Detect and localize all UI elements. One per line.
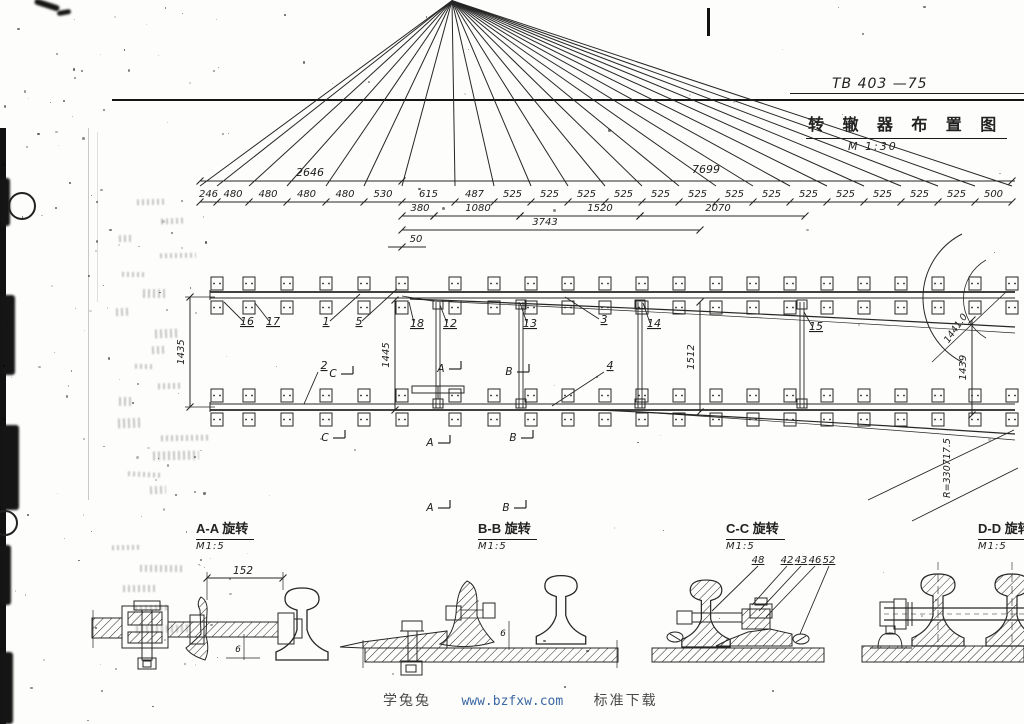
dim-label: 525 — [577, 189, 596, 200]
dim-label: 1080 — [465, 203, 490, 214]
dim-label: 525 — [651, 189, 670, 200]
part-label-18: 18 — [410, 317, 424, 330]
vertical-dim: 1512 — [686, 344, 697, 369]
section-a-scale: M1:5 — [196, 541, 254, 552]
section-c-part-label: 42 — [781, 555, 794, 566]
dim-label: 615 — [419, 189, 438, 200]
dim-label: 246 — [199, 189, 218, 200]
section-mark-C: C — [329, 368, 337, 380]
section-c-scale: M1:5 — [726, 541, 785, 552]
scanned-drawing-page: TB 403 —75 转 辙 器 布 置 图 M 1:30 2646769924… — [0, 0, 1024, 724]
watermark-url: www.bzfxw.com — [461, 694, 563, 709]
section-c-part-label: 46 — [809, 555, 822, 566]
radius-label: R=330717.5 — [942, 438, 953, 498]
rails — [210, 234, 1015, 440]
dimension-layer: 2646769924648048048048053061548752552552… — [176, 163, 1018, 521]
watermark: 学兔兔 www.bzfxw.com 标准下载 — [383, 690, 658, 710]
dim-label: 525 — [762, 189, 781, 200]
vertical-dim: 1435 — [176, 339, 187, 364]
dim-label: 525 — [540, 189, 559, 200]
watermark-site: 学兔兔 — [383, 692, 431, 708]
dim-label: 480 — [258, 189, 277, 200]
section-c-part-label: 48 — [752, 555, 765, 566]
dim-label: 525 — [688, 189, 707, 200]
part-label-3: 3 — [601, 313, 608, 326]
section-d-title: D-D 旋转 — [978, 518, 1024, 540]
part-label-2: 2 — [321, 359, 328, 372]
drawing-svg: 2646769924648048048048053061548752552552… — [0, 0, 1024, 724]
part-label-17: 17 — [266, 315, 280, 328]
dim-label: 525 — [725, 189, 744, 200]
section-a-title: A-A 旋转 — [196, 518, 254, 540]
section-c-title: C-C 旋转 — [726, 518, 785, 540]
dim-label: 2070 — [705, 203, 730, 214]
dim-label: 480 — [223, 189, 242, 200]
section-b-dim: 6 — [500, 629, 506, 639]
part-label-15: 15 — [809, 320, 823, 333]
section-a-dim: 152 — [233, 565, 253, 577]
section-c-part-label: 52 — [823, 555, 836, 566]
vertical-dim: 1439 — [958, 355, 969, 380]
vertical-dim: 1445 — [381, 342, 392, 367]
part-label-13: 13 — [523, 317, 537, 330]
dim-label: 525 — [910, 189, 929, 200]
dim-label: 480 — [297, 189, 316, 200]
part-labels: 1617151812133144215 — [224, 289, 823, 406]
section-c-title-block: C-C 旋转 M1:5 — [726, 518, 785, 552]
part-label-1: 1 — [323, 315, 330, 328]
section-d-drawing — [862, 562, 1024, 662]
dim-label: 525 — [503, 189, 522, 200]
section-d-scale: M1:5 — [978, 541, 1024, 552]
section-mark-A: A — [425, 502, 433, 514]
part-label-5: 5 — [356, 315, 363, 328]
dim-label: 1520 — [587, 203, 612, 214]
dim-label: 530 — [373, 189, 392, 200]
switch-rods — [412, 300, 807, 408]
section-mark-B: B — [505, 366, 512, 378]
dim-label: 50 — [410, 234, 423, 245]
section-mark-B: B — [502, 502, 509, 514]
overall-dim: 7699 — [692, 163, 720, 176]
section-a-title-block: A-A 旋转 M1:5 — [196, 518, 254, 552]
part-label-16: 16 — [240, 315, 254, 328]
section-c-drawing: 4842434652 — [652, 555, 835, 662]
dim-label: 525 — [614, 189, 633, 200]
dim-label: 525 — [836, 189, 855, 200]
section-b-drawing: 6 — [340, 576, 618, 675]
dim-label: 525 — [799, 189, 818, 200]
part-label-14: 14 — [647, 317, 661, 330]
dim-label: 3743 — [532, 217, 557, 228]
section-a-drawing: 1526 — [92, 565, 328, 669]
section-d-title-block: D-D 旋转 M1:5 — [978, 518, 1024, 552]
section-mark-A: A — [436, 363, 444, 375]
section-b-title: B-B 旋转 — [478, 518, 537, 540]
section-marks: CCAAABBB — [321, 361, 533, 514]
section-b-scale: M1:5 — [478, 541, 537, 552]
dim-label: 500 — [984, 189, 1003, 200]
watermark-tagline: 标准下载 — [594, 692, 658, 708]
part-label-4: 4 — [607, 359, 614, 372]
dim-label: 487 — [465, 189, 485, 200]
dim-label: 380 — [410, 203, 429, 214]
part-label-12: 12 — [443, 317, 457, 330]
overall-dim: 2646 — [296, 166, 324, 179]
section-c-part-label: 43 — [795, 555, 808, 566]
section-b-title-block: B-B 旋转 M1:5 — [478, 518, 537, 552]
section-mark-C: C — [321, 432, 329, 444]
dim-label: 480 — [335, 189, 354, 200]
dim-label: 525 — [947, 189, 966, 200]
section-mark-B: B — [509, 432, 516, 444]
section-mark-A: A — [425, 437, 433, 449]
dim-label: 525 — [873, 189, 892, 200]
section-a-dim: 6 — [235, 645, 241, 655]
